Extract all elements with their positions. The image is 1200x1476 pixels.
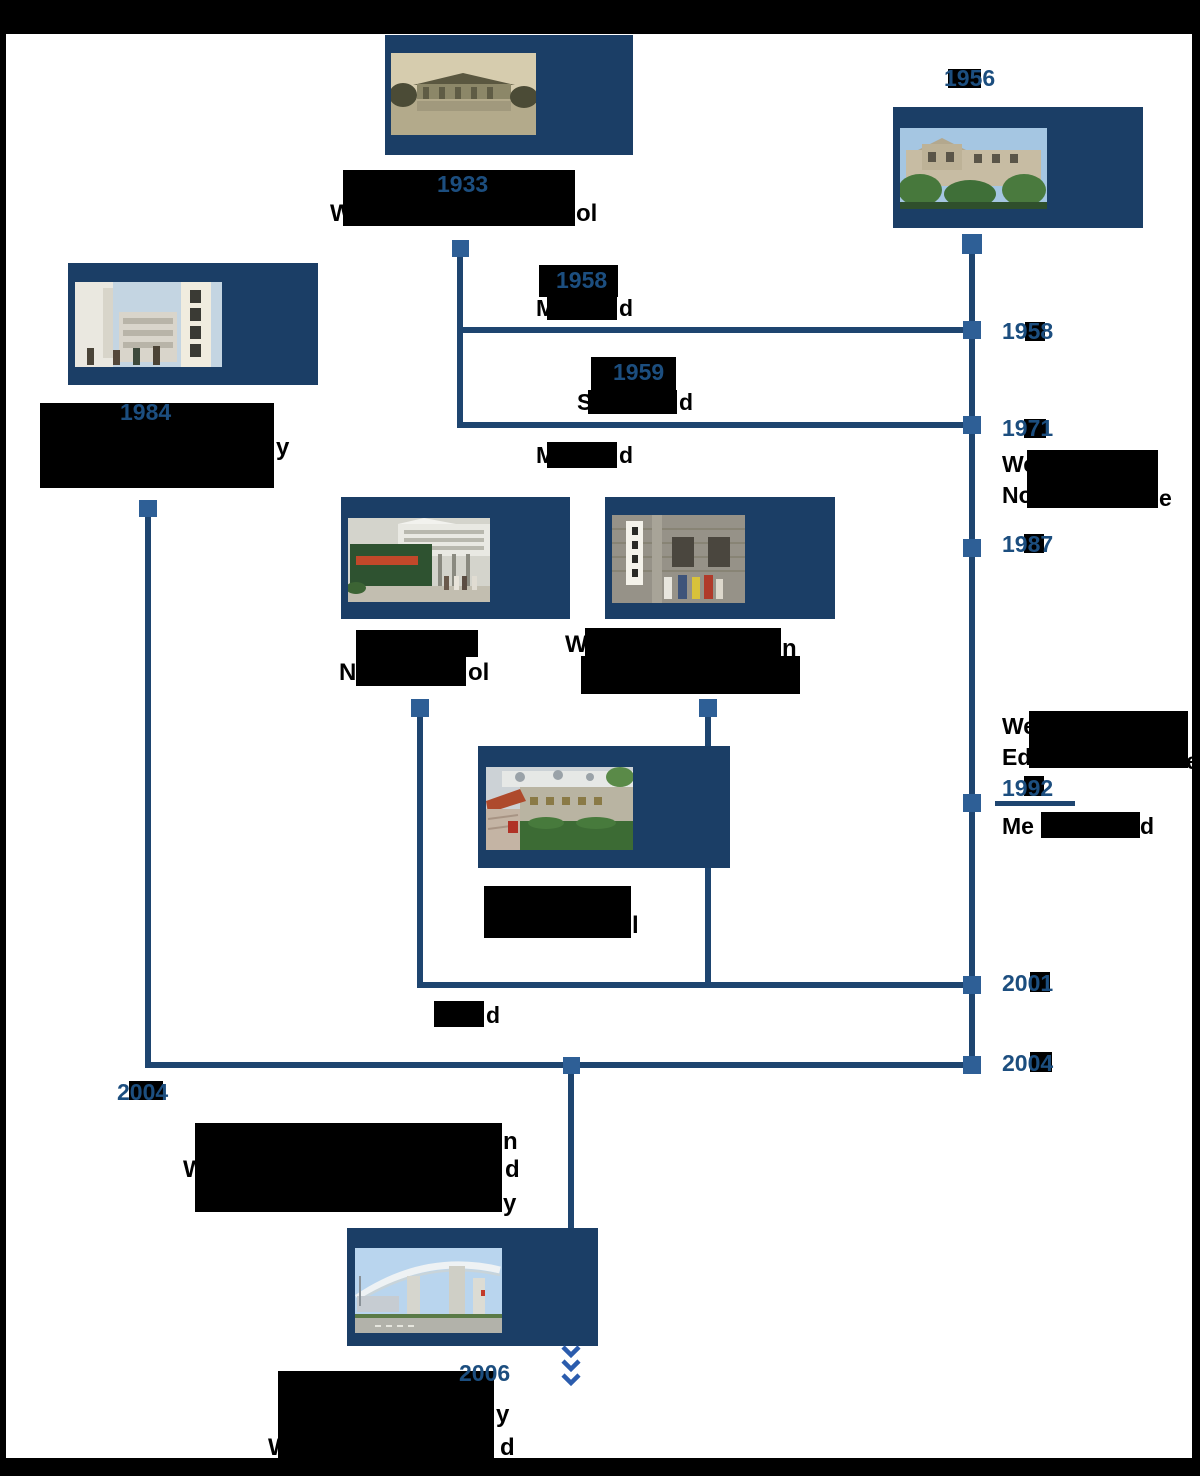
redaction-t1992-text (1029, 711, 1188, 768)
node-2004 (963, 1056, 981, 1074)
timeline-year-1958: 1958 (1002, 320, 1053, 343)
line-merge-2004 (145, 1062, 975, 1068)
line-ruian-down (417, 715, 423, 988)
connector-edu (699, 699, 717, 717)
frame-bar-top (0, 0, 1200, 34)
line-merge-1958 (457, 327, 975, 333)
connector-1956 (962, 234, 982, 254)
redaction-t1992-word (1041, 812, 1140, 838)
photo-1956-colonial-building (900, 128, 1047, 209)
year-1956: 1956 (944, 67, 995, 90)
block2004-line3-suffix: y (503, 1192, 516, 1216)
photo-zhejiang-pingyang-normal (486, 767, 633, 850)
line-2004-down (568, 1070, 574, 1230)
frame-bar-right (1192, 34, 1200, 1458)
frame-bar-left (0, 34, 6, 1458)
photo-1933-old-campus (391, 53, 536, 135)
connector-ruian (411, 699, 429, 717)
connector-1984 (139, 500, 157, 517)
redaction-2001-word (434, 1001, 484, 1027)
redaction-ruian-line2 (356, 655, 466, 686)
timeline-1992-word-suffix: d (1140, 815, 1154, 838)
timeline-year-1992: 1992 (1002, 777, 1053, 800)
photo-frame-1956 (893, 107, 1143, 228)
year-2004-left: 2004 (117, 1081, 168, 1104)
block2006-line2-suffix: y (496, 1403, 509, 1427)
line-1933-down (457, 254, 463, 428)
photo-frame-2006-campus (347, 1228, 598, 1346)
timeline-main-vertical (969, 250, 975, 1068)
merged-2001-suffix: d (486, 1004, 500, 1027)
timeline-1992-word-prefix: Me (1002, 815, 1034, 838)
timeline-1971-line1: We (1002, 453, 1036, 476)
photo-ruian-normal-school-gate (348, 518, 490, 602)
redaction-pingyang (484, 886, 631, 938)
year-2006: 2006 (459, 1362, 510, 1385)
chevron-down-icon (559, 1344, 583, 1394)
caption-1933-suffix: ol (576, 202, 597, 226)
redaction-1971-word (547, 442, 617, 468)
redaction-1958-word (547, 296, 617, 320)
timeline-1971-line2-prefix: No (1002, 484, 1033, 507)
redaction-ruian-line1 (356, 630, 478, 657)
year-1984: 1984 (120, 401, 171, 424)
photo-wenzhou-education-college (612, 515, 745, 603)
line-1984-down (145, 515, 151, 1068)
photo-1984-wenzhou-university-gate (75, 282, 222, 367)
photo-frame-edu-college (605, 497, 835, 619)
line-merge-1971 (457, 422, 975, 428)
frame-bar-bottom (0, 1458, 1200, 1476)
caption-ruian-suffix: ol (468, 661, 489, 685)
photo-frame-1984 (68, 263, 318, 385)
block2006-line3-suffix: d (500, 1436, 515, 1460)
photo-modern-campus-gate (355, 1248, 502, 1333)
node-1987 (963, 539, 981, 557)
timeline-year-2004: 2004 (1002, 1052, 1053, 1075)
caption-pingyang-suffix: l (632, 914, 639, 938)
university-history-timeline: 1933 1956 1984 1958 1959 1958 1971 1987 … (0, 0, 1200, 1476)
node-2001 (963, 976, 981, 994)
year-1933: 1933 (437, 173, 488, 196)
timeline-year-2001: 2001 (1002, 972, 1053, 995)
photo-frame-ruian (341, 497, 570, 619)
caption-1984-suffix: y (276, 436, 289, 460)
separated-1959-suffix: d (679, 391, 693, 414)
block2004-line1-suffix: n (503, 1130, 518, 1154)
timeline-year-1987: 1987 (1002, 533, 1053, 556)
redaction-1959-word (588, 390, 677, 414)
redaction-edu-line1 (585, 628, 781, 657)
junction-2004 (563, 1057, 580, 1074)
connector-1933 (452, 240, 469, 257)
year-1958-merge: 1958 (556, 269, 607, 292)
node-1958 (963, 321, 981, 339)
merged-1971-suffix: d (619, 444, 633, 467)
node-1971 (963, 416, 981, 434)
block2004-line2-suffix: d (505, 1158, 520, 1182)
caption-edu-suffix: n (782, 637, 797, 661)
line-merge-2001 (417, 982, 975, 988)
redaction-2004-block (195, 1123, 502, 1212)
redaction-edu-line2 (581, 656, 800, 694)
caption-ruian-prefix: N (339, 661, 356, 685)
timeline-1971-line2-suffix: e (1159, 487, 1172, 510)
timeline-1992-line2-prefix: Ed (1002, 746, 1031, 769)
photo-frame-1933 (385, 35, 633, 155)
node-1992 (963, 794, 981, 812)
photo-frame-pingyang (478, 746, 730, 868)
underline-1992 (995, 801, 1075, 806)
year-1959-split: 1959 (613, 361, 664, 384)
merged-1958-suffix: d (619, 297, 633, 320)
timeline-1992-line1: We (1002, 715, 1036, 738)
redaction-t1971-text (1027, 450, 1158, 508)
timeline-year-1971: 1971 (1002, 417, 1053, 440)
